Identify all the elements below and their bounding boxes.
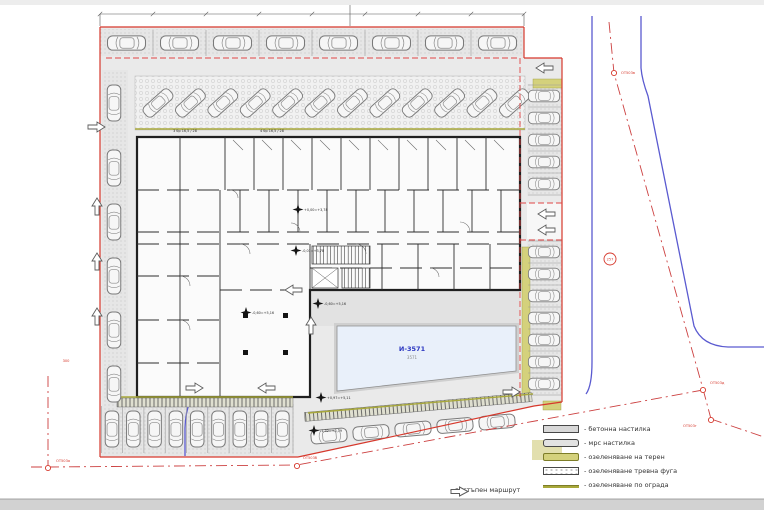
car-icon xyxy=(528,268,559,280)
elevation-label: -1,32=+3,79 xyxy=(320,429,342,433)
car-icon xyxy=(161,36,199,50)
car-icon xyxy=(212,411,226,447)
survey-point-label: ОТ503в xyxy=(621,71,635,75)
survey-point-label: ОТ503д xyxy=(710,381,725,385)
car-icon xyxy=(528,334,559,346)
car-icon xyxy=(127,411,141,447)
site-plan-canvas: И-3571 3571 3 бр 16,5 / 284 бр 16,5 / 28… xyxy=(0,0,764,510)
car-icon xyxy=(528,290,559,302)
car-icon xyxy=(254,411,268,447)
legend-item-label: - бетонна настилка xyxy=(584,425,651,433)
survey-point xyxy=(708,417,713,422)
legend-item: - озеленяване на терен xyxy=(543,452,733,461)
car-icon xyxy=(190,411,204,447)
car-icon xyxy=(528,378,559,390)
car-icon xyxy=(148,411,162,447)
point-circle-label: 257 xyxy=(607,257,614,261)
staircase xyxy=(342,268,370,288)
concrete-swatch xyxy=(543,425,579,433)
top-chrome-bar xyxy=(0,0,764,5)
pool-parcel-id: И-3571 xyxy=(399,345,426,353)
car-icon xyxy=(214,36,252,50)
legend-item-label: - озеленяване тревна фуга xyxy=(584,467,677,475)
elevation-label: -0,01=+3,78 xyxy=(302,249,324,253)
car-icon xyxy=(528,356,559,368)
car-icon xyxy=(107,258,121,294)
car-icon xyxy=(528,90,559,102)
car-icon xyxy=(108,36,146,50)
green-patch xyxy=(533,79,562,88)
green-joint-swatch xyxy=(543,467,579,475)
elevation-label: -0,60=+5,16 xyxy=(252,311,274,315)
car-icon xyxy=(528,134,559,146)
car-icon xyxy=(276,411,290,447)
car-icon xyxy=(426,36,464,50)
building-lower-wing xyxy=(137,290,310,397)
car-icon xyxy=(107,204,121,240)
car-icon xyxy=(107,312,121,348)
car-icon xyxy=(105,411,119,447)
survey-point-label: ОТ503б xyxy=(303,456,318,460)
survey-point-label: ОТ503а xyxy=(56,459,70,463)
legend-route-row: - достъпен маршрут xyxy=(450,486,520,494)
survey-point xyxy=(294,463,299,468)
survey-point xyxy=(45,465,50,470)
legend-item: - бетонна настилка xyxy=(543,424,733,433)
car-icon xyxy=(169,411,183,447)
survey-point xyxy=(700,387,705,392)
terrace xyxy=(310,290,520,326)
car-icon xyxy=(373,36,411,50)
car-icon xyxy=(528,156,559,168)
green-fence-swatch xyxy=(543,485,579,488)
car-icon xyxy=(107,85,121,121)
building-main-block xyxy=(137,137,520,290)
car-icon xyxy=(107,366,121,402)
stair-note: 3 бр 16,5 / 28 xyxy=(173,129,197,133)
car-icon xyxy=(528,312,559,324)
car-icon xyxy=(233,411,247,447)
legend-item-label: - мрс настилка xyxy=(584,439,635,447)
elevation-label: +0,00=+3,78 xyxy=(304,208,328,212)
car-icon xyxy=(479,36,517,50)
elevation-label: -0,60=+5,16 xyxy=(324,302,346,306)
legend-items: - бетонна настилка- мрс настилка- озелен… xyxy=(543,424,733,489)
car-icon xyxy=(528,112,559,124)
legend-item-label: - озеленяване по ограда xyxy=(584,481,669,489)
legend: - бетонна настилка- мрс настилка- озелен… xyxy=(543,424,733,494)
car-icon xyxy=(528,246,559,258)
dimension-note: 300 xyxy=(63,359,71,363)
car-icon xyxy=(107,150,121,186)
legend-item: - мрс настилка xyxy=(543,438,733,447)
green-terrain-swatch xyxy=(543,453,579,461)
elevation-label: +0,97=+5,11 xyxy=(327,396,351,400)
legend-item-label: - озеленяване на терен xyxy=(584,453,665,461)
paver-swatch xyxy=(543,439,579,447)
accessible-route-arrow-icon xyxy=(450,486,470,497)
car-icon xyxy=(528,178,559,190)
survey-point xyxy=(611,70,616,75)
car-icon xyxy=(267,36,305,50)
car-icon xyxy=(320,36,358,50)
legend-item: - озеленяване тревна фуга xyxy=(543,466,733,475)
legend-item: - озеленяване по ограда xyxy=(543,480,733,489)
fence-hatch-strip xyxy=(117,398,293,407)
bottom-chrome-bar xyxy=(0,499,764,510)
stair-note: 4 бр 16,5 / 28 xyxy=(260,129,284,133)
pool-parcel-sub: 3571 xyxy=(407,355,418,360)
